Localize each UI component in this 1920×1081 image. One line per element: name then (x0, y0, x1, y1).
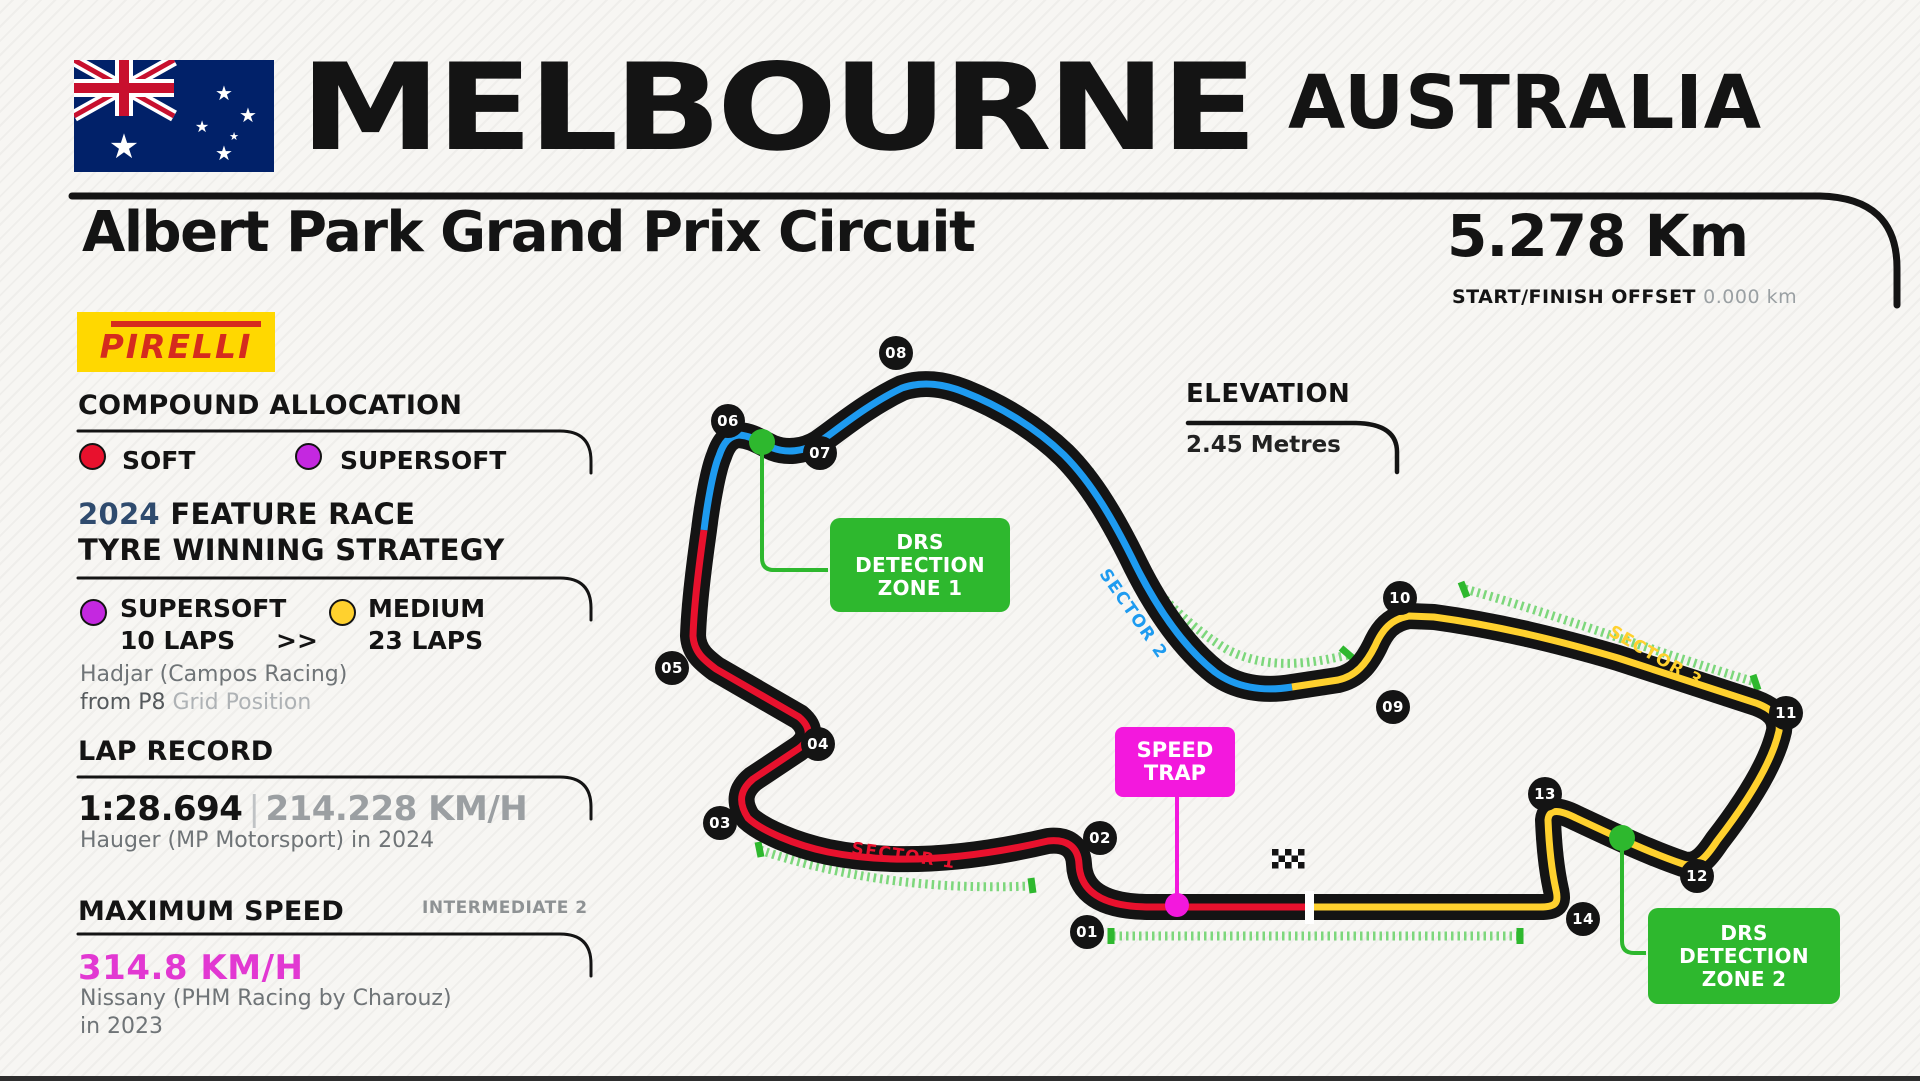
drs-detection-zone1-box: DRS DETECTION ZONE 1 (830, 518, 1010, 612)
grid-suffix: Grid Position (172, 690, 311, 715)
pirelli-logo-bar (111, 321, 261, 327)
corner-marker-13: 13 (1528, 777, 1562, 811)
strategy-year: 2024 (78, 497, 160, 531)
compound-allocation-heading: COMPOUND ALLOCATION (78, 390, 462, 421)
max-speed-value: 314.8 KM/H (78, 948, 303, 988)
drs1-line3: ZONE 1 (830, 577, 1010, 600)
offset-label: START/FINISH OFFSET (1452, 286, 1696, 308)
drs2-line3: ZONE 2 (1648, 968, 1840, 991)
lap-record-value: 1:28.694|214.228 KM/H (78, 789, 527, 829)
stint1-laps: 10 LAPS (120, 626, 235, 655)
footer-bar (0, 1076, 1920, 1081)
corner-marker-09: 09 (1376, 690, 1410, 724)
stint-arrow: >> (276, 626, 318, 655)
stint1-compound-dot (80, 599, 107, 626)
corner-marker-10: 10 (1383, 581, 1417, 615)
circuit-name: Albert Park Grand Prix Circuit (82, 200, 974, 265)
supersoft-compound-label: SUPERSOFT (340, 446, 506, 475)
stint2-compound-label: MEDIUM (368, 594, 485, 623)
max-speed-heading: MAXIMUM SPEED (78, 896, 344, 927)
svg-text:★: ★ (109, 127, 139, 167)
elevation-heading: ELEVATION (1186, 379, 1350, 409)
checkered-flag-icon (1272, 849, 1305, 869)
drs1-line2: DETECTION (830, 554, 1010, 577)
soft-compound-label: SOFT (122, 446, 195, 475)
soft-compound-dot (79, 443, 106, 470)
lap-record-time: 1:28.694 (78, 789, 242, 829)
svg-text:★: ★ (215, 81, 233, 105)
drs2-line1: DRS (1648, 922, 1840, 945)
pirelli-logo-word: PIRELLI (100, 327, 253, 366)
country-title: AUSTRALIA (1288, 66, 1762, 140)
supersoft-compound-dot (295, 443, 322, 470)
corner-marker-11: 11 (1769, 696, 1803, 730)
grid-prefix: from P8 (80, 690, 165, 715)
corner-marker-14: 14 (1566, 902, 1600, 936)
corner-marker-02: 02 (1083, 821, 1117, 855)
lap-record-speed: 214.228 KM/H (265, 789, 527, 829)
drs-detection-zone2-box: DRS DETECTION ZONE 2 (1648, 908, 1840, 1004)
corner-marker-08: 08 (879, 336, 913, 370)
offset-value: 0.000 km (1703, 286, 1797, 308)
strategy-heading-line1: 2024 FEATURE RACE (78, 497, 415, 531)
max-speed-holder-line1: Nissany (PHM Racing by Charouz) (80, 986, 452, 1011)
strategy-driver: Hadjar (Campos Racing) (80, 662, 347, 687)
speed-trap-dot (1165, 893, 1189, 917)
svg-text:★: ★ (215, 141, 233, 165)
corner-marker-03: 03 (703, 806, 737, 840)
track-length: 5.278 Km (1447, 202, 1748, 270)
corner-marker-07: 07 (803, 436, 837, 470)
pirelli-logo: PIRELLI (77, 312, 275, 372)
stint1-compound-label: SUPERSOFT (120, 594, 286, 623)
start-finish-offset: START/FINISH OFFSET 0.000 km (1452, 286, 1797, 308)
stint2-compound-dot (329, 599, 356, 626)
max-speed-tag: INTERMEDIATE 2 (422, 898, 588, 918)
drs1-detection-dot (749, 429, 775, 455)
city-title: MELBOURNE (300, 52, 1253, 166)
corner-marker-06: 06 (711, 404, 745, 438)
lap-record-divider: | (242, 789, 265, 829)
corner-marker-01: 01 (1070, 915, 1104, 949)
svg-text:★: ★ (195, 117, 209, 136)
start-finish-line (1305, 891, 1314, 924)
speed-trap-line1: SPEED (1115, 739, 1235, 762)
max-speed-holder-line2: in 2023 (80, 1014, 163, 1039)
stint2-laps: 23 LAPS (368, 626, 483, 655)
strategy-grid: from P8 Grid Position (80, 690, 311, 715)
corner-marker-05: 05 (655, 651, 689, 685)
svg-text:★: ★ (229, 130, 239, 143)
drs2-detection-dot (1609, 825, 1635, 851)
strategy-heading-line2: TYRE WINNING STRATEGY (78, 533, 505, 567)
drs1-line1: DRS (830, 531, 1010, 554)
drs2-line2: DETECTION (1648, 945, 1840, 968)
australia-flag: ★ ★ ★ ★ ★ ★ (74, 60, 274, 172)
corner-marker-12: 12 (1680, 859, 1714, 893)
corner-marker-04: 04 (801, 727, 835, 761)
speed-trap-box: SPEED TRAP (1115, 727, 1235, 797)
elevation-value: 2.45 Metres (1186, 432, 1341, 458)
lap-record-holder: Hauger (MP Motorsport) in 2024 (80, 828, 434, 853)
union-jack (74, 60, 174, 116)
lap-record-heading: LAP RECORD (78, 736, 274, 767)
speed-trap-line2: TRAP (1115, 762, 1235, 785)
strategy-heading-rest: FEATURE RACE (170, 497, 415, 531)
infographic-page: SECTOR 1 SECTOR 2 SECTOR 3 (0, 0, 1920, 1081)
svg-text:★: ★ (239, 103, 257, 127)
